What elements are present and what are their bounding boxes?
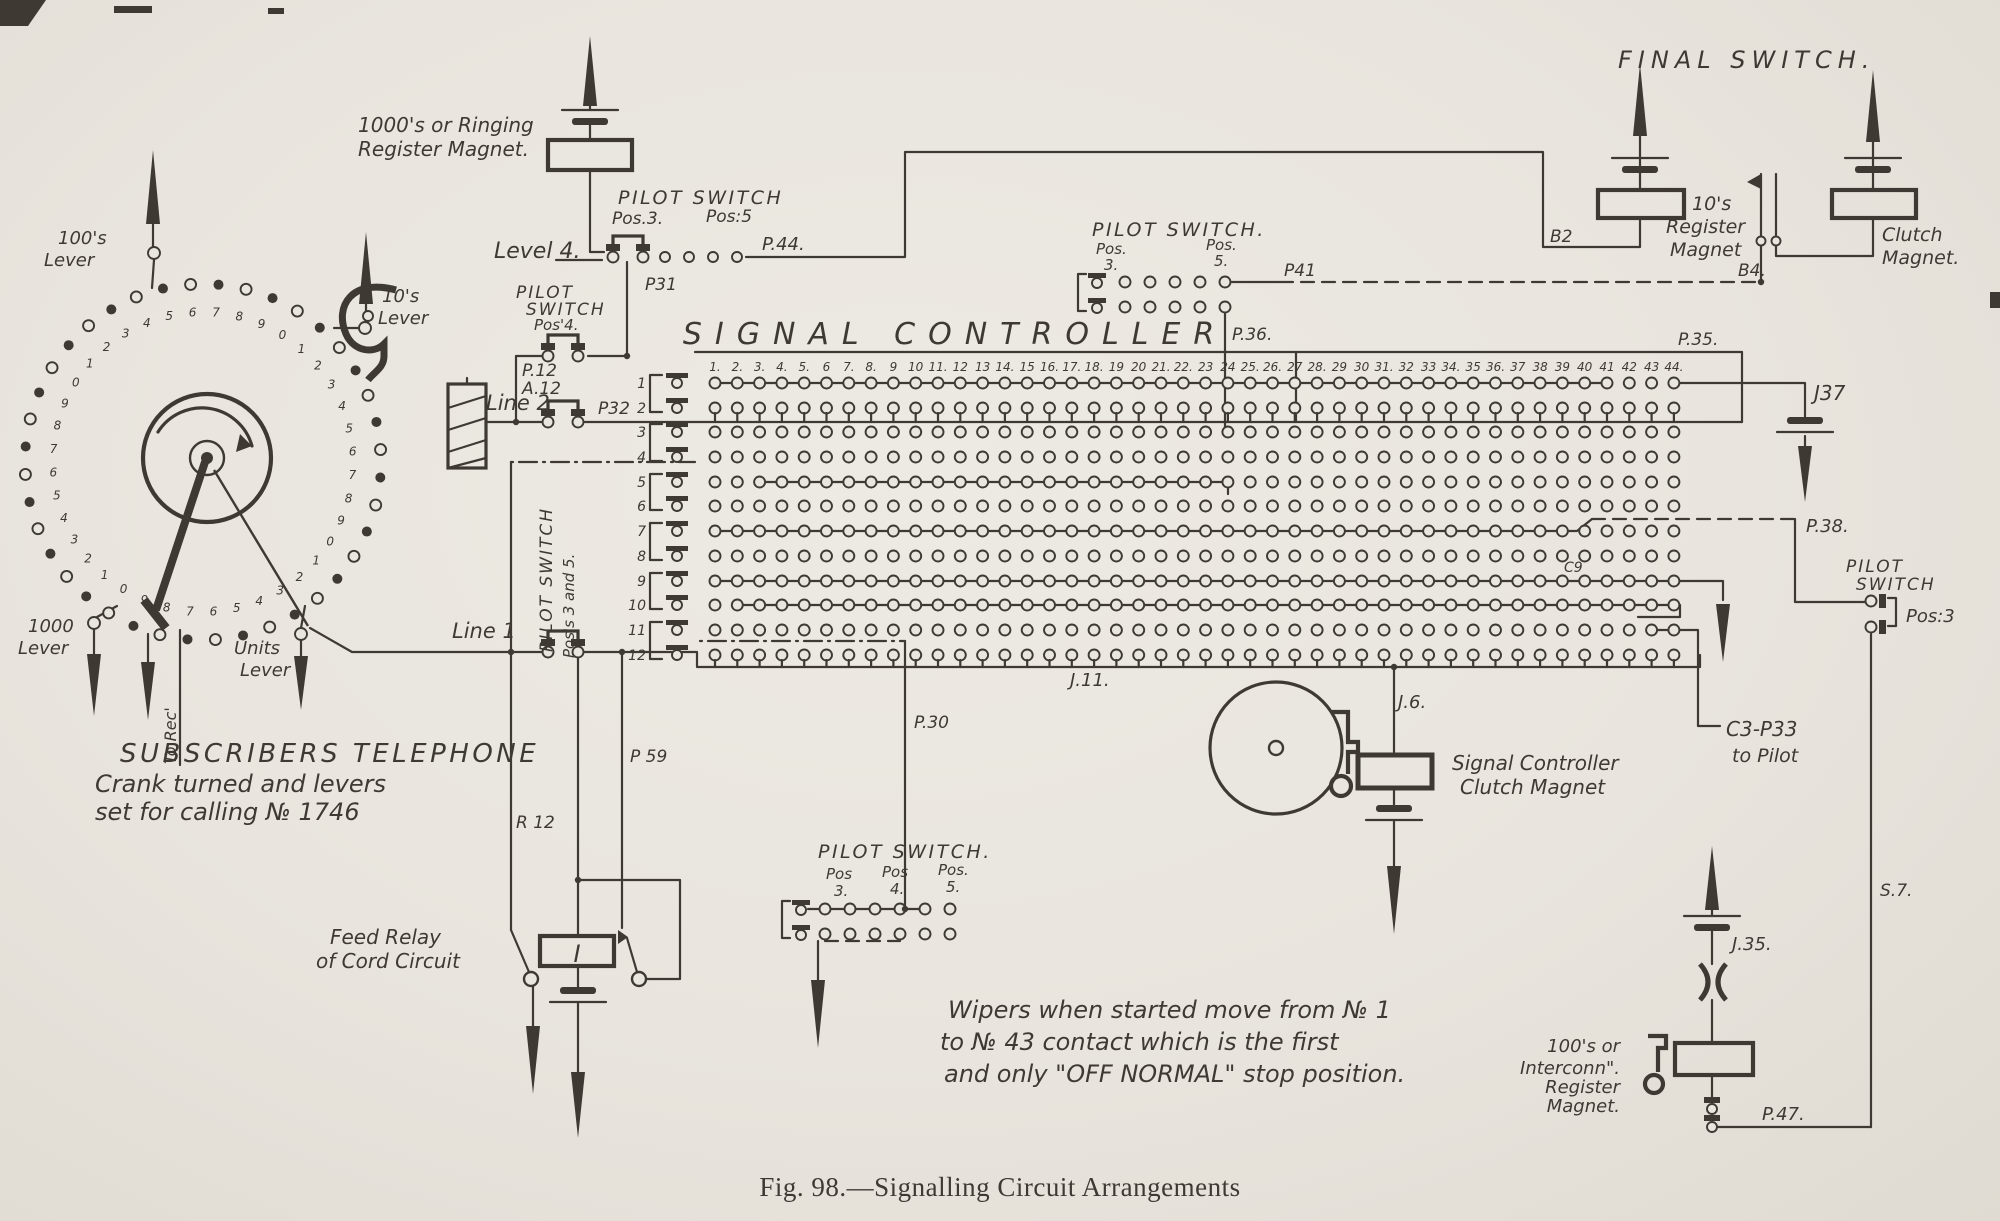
matrix-contact: [1490, 477, 1501, 488]
wipers-note-1: Wipers when started move from № 1: [948, 996, 1391, 1024]
lever-100-label-1: 100's: [58, 228, 107, 249]
line2-contacts-stem: [573, 417, 584, 428]
matrix-contact: [1133, 600, 1144, 611]
matrix-column-label: 28.: [1308, 360, 1327, 374]
wiper-hook-contact: [672, 477, 682, 487]
matrix-column-label: 34.: [1441, 360, 1460, 374]
matrix-contact: [1557, 378, 1568, 389]
battery-pill: [1694, 924, 1730, 931]
matrix-contact: [1089, 625, 1100, 636]
matrix-contact: [1668, 403, 1679, 414]
matrix-contact: [1133, 403, 1144, 414]
dial-digit: 9: [61, 396, 69, 410]
matrix-row-label: 1: [637, 376, 646, 392]
matrix-column-label: 4.: [776, 360, 787, 374]
matrix-contact: [1066, 501, 1077, 512]
matrix-contact: [1668, 600, 1679, 611]
matrix-contact: [1044, 501, 1055, 512]
matrix-contact: [1423, 625, 1434, 636]
matrix-row-label: 8: [637, 549, 646, 565]
matrix-contact: [866, 551, 877, 562]
dial-digit: 8: [54, 419, 62, 433]
b4-contact-blade: [1747, 174, 1761, 189]
matrix-contact: [1646, 625, 1657, 636]
matrix-contact: [1089, 403, 1100, 414]
matrix-contact: [1066, 526, 1077, 537]
matrix-contact: [1044, 526, 1055, 537]
matrix-contact: [1468, 625, 1479, 636]
matrix-contact: [1222, 477, 1233, 488]
matrix-contact: [799, 427, 810, 438]
matrix-contact: [843, 551, 854, 562]
matrix-contact: [1468, 477, 1479, 488]
dial-digit: 4: [143, 316, 151, 330]
matrix-contact: [1289, 625, 1300, 636]
matrix-contact: [1624, 600, 1635, 611]
matrix-contact: [977, 477, 988, 488]
matrix-contact: [1579, 526, 1590, 537]
dial-digit: 2: [84, 551, 92, 565]
matrix-contact: [910, 625, 921, 636]
matrix-contact: [1044, 551, 1055, 562]
matrix-contact: [710, 452, 721, 463]
matrix-contact: [1289, 501, 1300, 512]
matrix-contact: [776, 576, 787, 587]
dial-digit: 3: [328, 378, 336, 392]
matrix-contact: [977, 551, 988, 562]
matrix-contact: [1133, 625, 1144, 636]
matrix-column-label: 15: [1020, 360, 1035, 374]
matrix-contact: [1668, 477, 1679, 488]
ratchet-right: [1718, 964, 1726, 1000]
matrix-contact: [843, 427, 854, 438]
matrix-contact: [1245, 403, 1256, 414]
dial-digit: 2: [314, 359, 322, 373]
pilot-switch-pos3-right: [1866, 594, 1897, 634]
matrix-contact: [1379, 501, 1390, 512]
bottom-pilot-contact: [845, 929, 856, 940]
battery-pill: [560, 987, 596, 994]
matrix-contact: [1535, 551, 1546, 562]
matrix-column-label: 10: [908, 360, 924, 374]
matrix-contact: [1490, 600, 1501, 611]
matrix-contact: [1312, 650, 1323, 661]
matrix-contact: [955, 650, 966, 661]
matrix-contact: [1602, 625, 1613, 636]
matrix-contact: [999, 551, 1010, 562]
matrix-contact: [799, 625, 810, 636]
matrix-contact: [955, 378, 966, 389]
matrix-contact: [955, 403, 966, 414]
matrix-contact: [1156, 378, 1167, 389]
mid-pilot-title: PILOT SWITCH.: [1092, 219, 1266, 241]
matrix-contact: [1445, 526, 1456, 537]
matrix-contact: [910, 378, 921, 389]
dial-contact: [375, 473, 385, 483]
sc-clutch-magnet-coil: [1358, 755, 1432, 788]
matrix-contact: [1111, 551, 1122, 562]
matrix-contact: [1156, 403, 1167, 414]
matrix-contact: [1490, 427, 1501, 438]
matrix-contact: [821, 625, 832, 636]
wiper-arrow: [583, 36, 597, 106]
matrix-contact: [1222, 403, 1233, 414]
wiper-hook-contact: [672, 551, 682, 561]
sc-clutch-label-2: Clutch Magnet: [1460, 775, 1606, 799]
wiper-arrow: [811, 980, 825, 1048]
matrix-contact: [866, 650, 877, 661]
matrix-contact: [732, 526, 743, 537]
matrix-contact: [1646, 551, 1657, 562]
matrix-contact: [754, 378, 765, 389]
matrix-contact: [866, 427, 877, 438]
matrix-contact: [933, 477, 944, 488]
matrix-contact: [910, 526, 921, 537]
junction-dot: [513, 419, 519, 425]
matrix-contact: [1445, 600, 1456, 611]
matrix-column-label: 13: [975, 360, 990, 374]
matrix-contact: [710, 403, 721, 414]
ringing-magnet-label-1: 1000's or Ringing: [358, 113, 534, 137]
right-arm-blade: [618, 930, 628, 944]
matrix-contact: [1468, 576, 1479, 587]
dial-contact: [292, 306, 303, 317]
circuit-diagram: 7890123456789012345678901234567890123456…: [0, 0, 2000, 1221]
line2-contacts-cap: [571, 409, 585, 416]
matrix-contact: [977, 576, 988, 587]
matrix-contact: [1044, 403, 1055, 414]
matrix-contact: [866, 625, 877, 636]
wire-ringing-magnet: [590, 125, 604, 252]
matrix-row-label: 12: [628, 648, 646, 664]
matrix-column-label: 39: [1555, 360, 1570, 374]
matrix-contact: [1111, 650, 1122, 661]
b2-label: B2: [1550, 227, 1572, 247]
matrix-contact: [1579, 576, 1590, 587]
matrix-contact: [1356, 576, 1367, 587]
row-pair-bracket: [650, 375, 662, 412]
ringing-register-magnet-coil: [548, 140, 632, 170]
matrix-contact: [866, 600, 877, 611]
dial-contact: [158, 284, 168, 294]
dial-contact: [332, 574, 342, 584]
bottom-pilot-pos5a: Pos.: [938, 861, 969, 879]
cam-center: [1269, 741, 1283, 755]
mid-pilot-contact: [1145, 302, 1156, 313]
matrix-contact: [888, 427, 899, 438]
matrix-contact: [1512, 650, 1523, 661]
matrix-contact: [1022, 650, 1033, 661]
matrix-contact: [1200, 551, 1211, 562]
mid-pilot-contact: [1170, 302, 1181, 313]
matrix-contact: [933, 625, 944, 636]
matrix-contact: [1624, 477, 1635, 488]
matrix-column-label: 2.: [732, 360, 743, 374]
matrix-contact: [1379, 551, 1390, 562]
dial-contact: [214, 280, 224, 290]
matrix-contact: [710, 378, 721, 389]
matrix-contact: [888, 452, 899, 463]
matrix-contact: [1557, 625, 1568, 636]
matrix-contact: [843, 650, 854, 661]
matrix-contact: [1289, 427, 1300, 438]
matrix-contact: [933, 427, 944, 438]
matrix-contact: [1379, 526, 1390, 537]
matrix-contact: [754, 625, 765, 636]
matrix-contact: [1646, 452, 1657, 463]
matrix-contact: [1624, 452, 1635, 463]
dial-contact: [45, 549, 55, 559]
dial-digit: 0: [72, 376, 80, 390]
matrix-column-label: 38: [1532, 360, 1548, 374]
matrix-contact: [1535, 600, 1546, 611]
feed-relay-label-2: of Cord Circuit: [316, 949, 461, 973]
matrix-contact: [955, 625, 966, 636]
matrix-contact: [1022, 452, 1033, 463]
matrix-contact: [1245, 452, 1256, 463]
dial-contact: [128, 621, 138, 631]
wiper-arrow: [1387, 866, 1401, 934]
matrix-column-label: 19: [1109, 360, 1124, 374]
b4-relay-contact: [1747, 174, 1781, 246]
wiper-hook-contact: [672, 650, 682, 660]
scanned-schematic-page: 7890123456789012345678901234567890123456…: [0, 0, 2000, 1221]
wire-p44: [746, 152, 1640, 257]
interconn-register-magnet-coil: [1675, 1043, 1753, 1075]
matrix-contact: [754, 427, 765, 438]
matrix-column-label: 30: [1354, 360, 1370, 374]
telephone-caption-3: set for calling № 1746: [95, 798, 360, 826]
reg10-label-1: 10's: [1692, 193, 1731, 215]
matrix-contact: [888, 650, 899, 661]
matrix-contact: [799, 477, 810, 488]
wiper-arrow: [141, 662, 155, 720]
matrix-contact: [1044, 427, 1055, 438]
matrix-contact: [888, 600, 899, 611]
matrix-contact: [1423, 378, 1434, 389]
matrix-contact: [732, 551, 743, 562]
matrix-contact: [1512, 403, 1523, 414]
matrix-contact: [866, 526, 877, 537]
matrix-contact: [1535, 427, 1546, 438]
matrix-column-label: 32: [1399, 360, 1414, 374]
matrix-contact: [1356, 526, 1367, 537]
right-pilot-title-1: PILOT: [1846, 557, 1904, 577]
matrix-contact: [732, 501, 743, 512]
dial-digit: 9: [258, 317, 266, 331]
matrix-contact: [1401, 600, 1412, 611]
feed-relay-label-1: Feed Relay: [330, 925, 442, 949]
matrix-contact: [776, 551, 787, 562]
matrix-contact: [1401, 650, 1412, 661]
matrix-contact: [999, 427, 1010, 438]
matrix-contact: [1379, 477, 1390, 488]
matrix-contact: [1133, 501, 1144, 512]
matrix-contact: [1289, 452, 1300, 463]
matrix-contact: [1468, 403, 1479, 414]
induction-coil-hatch: [448, 378, 486, 468]
dial-digit: 2: [296, 570, 304, 584]
matrix-contact: [1222, 625, 1233, 636]
dial-digit: 8: [345, 491, 353, 505]
matrix-column-label: 35: [1466, 360, 1481, 374]
matrix-contact: [977, 625, 988, 636]
lever-100-link: [152, 260, 154, 288]
matrix-contact: [1624, 378, 1635, 389]
subscribers-telephone: [88, 247, 486, 640]
j11-label: J.11.: [1067, 670, 1110, 691]
interconn-pawl: [1648, 1036, 1666, 1072]
matrix-contact: [866, 576, 877, 587]
bottom-pilot-pos4b: 4.: [890, 880, 904, 898]
matrix-contact: [1445, 650, 1456, 661]
matrix-contact: [1178, 477, 1189, 488]
matrix-contact: [999, 526, 1010, 537]
matrix-contact: [1267, 600, 1278, 611]
matrix-contact: [1646, 477, 1657, 488]
clutch-label-2: Magnet.: [1882, 247, 1959, 269]
reg10-label-3: Magnet: [1670, 239, 1743, 261]
matrix-contact: [1624, 427, 1635, 438]
matrix-contact: [1423, 501, 1434, 512]
matrix-contact: [732, 650, 743, 661]
matrix-contact: [955, 526, 966, 537]
matrix-contact: [1602, 526, 1613, 537]
mid-pilot-contact: [1220, 302, 1231, 313]
matrix-contact: [1512, 452, 1523, 463]
matrix-contact: [1267, 551, 1278, 562]
matrix-contact: [732, 378, 743, 389]
matrix-contact: [1044, 600, 1055, 611]
matrix-contact: [1579, 625, 1590, 636]
matrix-contact: [955, 600, 966, 611]
wiper-hook-contact: [672, 427, 682, 437]
mid-pilot-contact: [1170, 277, 1181, 288]
matrix-contact: [1334, 576, 1345, 587]
telephone-caption-2: Crank turned and levers: [95, 770, 386, 798]
matrix-contact: [1178, 625, 1189, 636]
matrix-contact: [1312, 625, 1323, 636]
matrix-column-label: 41: [1599, 360, 1614, 374]
matrix-contact: [977, 403, 988, 414]
level4-bank-contact: [732, 252, 742, 262]
matrix-contact: [732, 576, 743, 587]
matrix-contact: [1512, 526, 1523, 537]
bottom-pilot-contact: [920, 929, 931, 940]
matrix-contact: [1245, 576, 1256, 587]
matrix-contact: [1646, 501, 1657, 512]
interconn-label-3: Register: [1545, 1077, 1622, 1098]
dial-digit: 1: [298, 342, 306, 356]
matrix-contact: [888, 378, 899, 389]
bottom-pilot-hook-contact: [796, 905, 806, 915]
matrix-contact: [1334, 600, 1345, 611]
matrix-contact: [776, 477, 787, 488]
matrix-contact: [933, 600, 944, 611]
dial-digit: 9: [337, 514, 345, 528]
p59-label: P 59: [630, 747, 667, 767]
matrix-contact: [1133, 452, 1144, 463]
matrix-contact: [1535, 403, 1546, 414]
matrix-contact: [732, 452, 743, 463]
matrix-contact: [1535, 477, 1546, 488]
dial-digit: 5: [345, 421, 353, 435]
matrix-contact: [1557, 576, 1568, 587]
cam-pawl-ball: [1331, 776, 1351, 796]
matrix-contact: [732, 625, 743, 636]
dial-digit: 5: [233, 601, 241, 615]
matrix-contact: [1401, 625, 1412, 636]
matrix-column-label: 25.: [1241, 360, 1260, 374]
matrix-column-label: 3.: [754, 360, 765, 374]
matrix-contact: [910, 600, 921, 611]
dial-contact: [106, 304, 116, 314]
matrix-contact: [1066, 551, 1077, 562]
bottom-pilot-title: PILOT SWITCH.: [818, 841, 992, 863]
dial-digit: 4: [338, 399, 346, 413]
matrix-contact: [866, 477, 877, 488]
dial-contact: [81, 591, 91, 601]
matrix-contact: [1222, 576, 1233, 587]
matrix-contact: [1535, 526, 1546, 537]
pos4-contacts-stem: [573, 351, 584, 362]
dial-contact: [315, 323, 325, 333]
matrix-contact: [1089, 452, 1100, 463]
dial-contact: [182, 634, 192, 644]
dial-digit: 7: [349, 468, 357, 482]
interconn-label-4: Magnet.: [1547, 1096, 1620, 1117]
dial-digit: 3: [71, 532, 79, 546]
matrix-contact: [1356, 427, 1367, 438]
matrix-contact: [1200, 427, 1211, 438]
matrix-contact: [821, 452, 832, 463]
p32-label: P32: [598, 399, 630, 419]
matrix-contact: [1267, 378, 1278, 389]
matrix-contact: [776, 650, 787, 661]
matrix-contact: [1579, 452, 1590, 463]
row-pair-bracket: [650, 523, 662, 560]
matrix-contact: [1668, 625, 1679, 636]
matrix-contact: [710, 625, 721, 636]
matrix-contact: [1423, 576, 1434, 587]
matrix-contact: [821, 526, 832, 537]
matrix-contact: [1646, 576, 1657, 587]
wipers-note-2: to № 43 contact which is the first: [940, 1028, 1340, 1056]
matrix-contact: [1312, 526, 1323, 537]
matrix-contact: [1089, 427, 1100, 438]
wire-b4-right: [1776, 218, 1873, 256]
matrix-contact: [1557, 452, 1568, 463]
matrix-column-label: 20: [1131, 360, 1147, 374]
figure-caption: Fig. 98.—Signalling Circuit Arrangements: [759, 1172, 1240, 1202]
matrix-column-label: 26.: [1263, 360, 1282, 374]
dial-contact: [25, 497, 35, 507]
matrix-contact: [1133, 427, 1144, 438]
matrix-contact: [1512, 477, 1523, 488]
matrix-contact: [1156, 526, 1167, 537]
matrix-contact: [1066, 403, 1077, 414]
matrix-contact: [1089, 576, 1100, 587]
p35-label: P.35.: [1678, 330, 1718, 350]
bottom-pilot-pos3a: Pos: [826, 865, 852, 883]
matrix-contact: [1178, 501, 1189, 512]
matrix-contact: [1356, 625, 1367, 636]
lever-1000-label-1: 1000: [28, 616, 74, 637]
matrix-contact: [910, 650, 921, 661]
matrix-contact: [1468, 551, 1479, 562]
matrix-contact: [1089, 551, 1100, 562]
matrix-contact: [1557, 427, 1568, 438]
